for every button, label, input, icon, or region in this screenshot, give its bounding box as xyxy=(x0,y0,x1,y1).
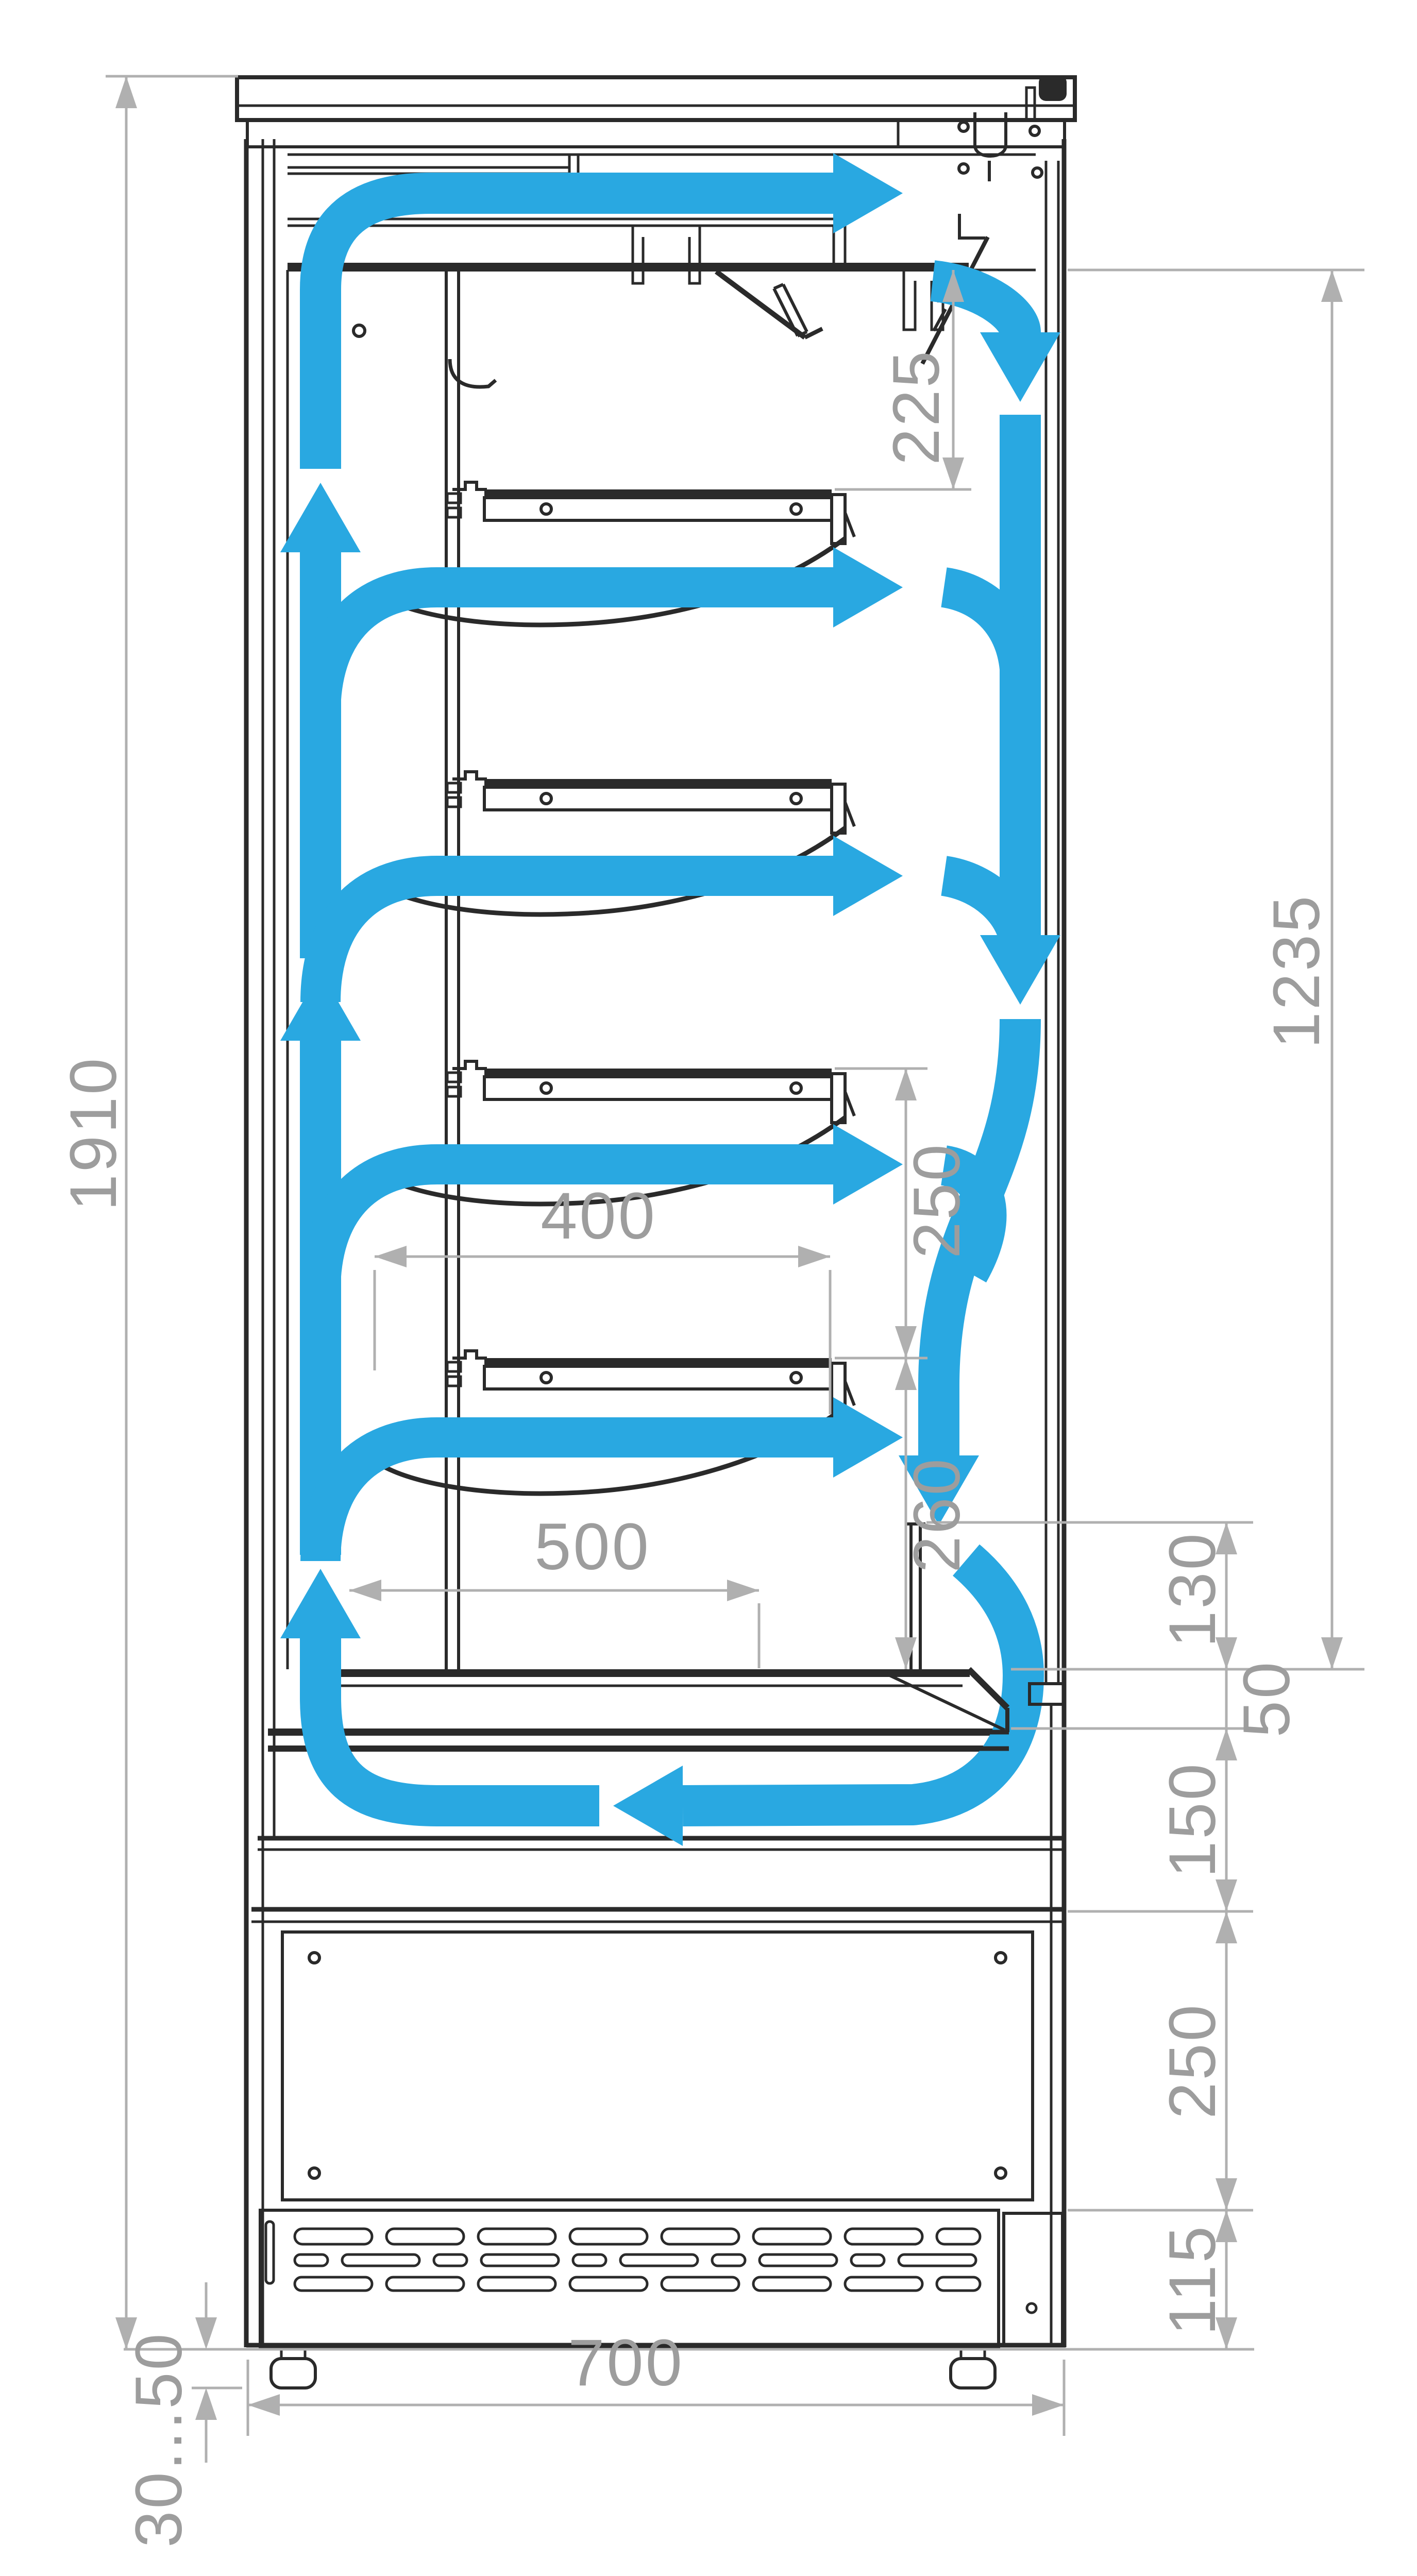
vent-slot xyxy=(295,2229,372,2244)
shelf-front-bracket xyxy=(832,784,845,833)
vent-slot xyxy=(295,2277,372,2291)
airflow-left-arrow xyxy=(613,1766,683,1846)
vent-slot xyxy=(295,2255,328,2266)
vent-slot xyxy=(434,2255,467,2266)
dim-overall-depth: 700 xyxy=(248,2326,1064,2416)
well-top xyxy=(330,1669,970,1677)
top-cap xyxy=(237,75,1075,147)
shelf-front-bracket xyxy=(832,495,845,544)
vent-slot xyxy=(478,2277,555,2291)
screw xyxy=(353,325,365,336)
vent-slot xyxy=(753,2277,831,2291)
vent-slot xyxy=(573,2255,606,2266)
dim-label-250b: 250 xyxy=(1156,2003,1229,2119)
vent-slot xyxy=(481,2255,559,2266)
screw xyxy=(996,2168,1006,2178)
airflow-shelf-branch xyxy=(320,587,833,714)
airflow-shelf-branch xyxy=(320,876,833,1002)
dim-label-50: 50 xyxy=(1230,1660,1304,1737)
foot xyxy=(271,2347,315,2388)
compartment-panel xyxy=(282,1932,1033,2200)
shelf-front-bracket xyxy=(832,1074,845,1123)
cabinet-section-diagram: 1910 225 1235 250 260 xyxy=(0,0,1417,2576)
dim-label-225: 225 xyxy=(880,349,953,465)
dim-label-260: 260 xyxy=(900,1456,974,1573)
shelf-body xyxy=(484,787,832,810)
airflow-down-arrow xyxy=(980,332,1060,402)
canopy-floor xyxy=(288,263,969,272)
airflow-right-arrow xyxy=(833,1124,903,1205)
well-front-slope xyxy=(969,1669,1007,1708)
dim-label-250: 250 xyxy=(900,1142,974,1259)
door-hinge-knob xyxy=(1039,75,1067,101)
shelf-body xyxy=(484,498,832,520)
screw xyxy=(791,1372,801,1383)
vent-slot xyxy=(386,2229,464,2244)
screw xyxy=(959,122,968,131)
airflow-curtain-start xyxy=(933,281,1020,332)
vent-slot xyxy=(570,2277,647,2291)
screw xyxy=(1030,126,1039,135)
screw xyxy=(541,504,551,514)
vent-slot xyxy=(845,2229,922,2244)
vent-slot xyxy=(712,2255,745,2266)
sensor-probe xyxy=(450,359,496,387)
vent-slot xyxy=(937,2229,980,2244)
vent-slot xyxy=(662,2229,739,2244)
page: { "diagram": { "title": "refrigerated-di… xyxy=(0,0,1417,2576)
vent-slot xyxy=(760,2255,837,2266)
dimensions: 1910 225 1235 250 260 xyxy=(57,76,1364,2548)
dim-overall-height: 1910 xyxy=(57,76,137,2349)
foot xyxy=(951,2347,995,2388)
side-slot xyxy=(266,2222,274,2283)
dim-label-700: 700 xyxy=(568,2326,684,2400)
screw xyxy=(791,793,801,804)
airflow-right-arrow xyxy=(833,836,903,916)
screw xyxy=(959,164,968,173)
airflow-up-arrow xyxy=(280,483,361,552)
screw xyxy=(309,1953,319,1963)
dim-label-115: 115 xyxy=(1156,2224,1229,2335)
dim-label-130: 130 xyxy=(1156,1531,1229,1648)
machine-compartment xyxy=(282,1932,1033,2200)
screw xyxy=(541,1372,551,1383)
foot-body xyxy=(271,2359,315,2388)
foot-body xyxy=(951,2359,995,2388)
vent-slot xyxy=(620,2255,698,2266)
dim-label-150: 150 xyxy=(1156,1761,1229,1878)
dim-well-width: 500 xyxy=(349,1510,759,1601)
dim-display-opening: 1235 xyxy=(1260,270,1343,1669)
screw xyxy=(1027,2303,1036,2313)
door-latch xyxy=(1026,88,1035,121)
duct-bracket xyxy=(633,227,700,283)
shelf-body xyxy=(484,1077,832,1099)
dim-label-400: 400 xyxy=(541,1179,657,1253)
vent-slot xyxy=(662,2277,739,2291)
shelves xyxy=(379,482,854,1494)
screw xyxy=(791,1083,801,1093)
airflow-merge xyxy=(944,587,1020,680)
vent-slot xyxy=(342,2255,419,2266)
screw xyxy=(541,793,551,804)
airflow-up-arrow xyxy=(280,1569,361,1638)
vent-slot xyxy=(478,2229,555,2244)
vent-grille-slots xyxy=(295,2229,980,2291)
vent-slot xyxy=(753,2229,831,2244)
screw xyxy=(996,1953,1006,1963)
shelf-body xyxy=(484,1366,832,1389)
screw xyxy=(541,1083,551,1093)
screw xyxy=(309,2168,319,2178)
airflow-right-arrow xyxy=(833,153,903,233)
dim-label-30-50: 30...50 xyxy=(122,2331,196,2547)
vent-slot xyxy=(937,2277,980,2291)
vent-slot xyxy=(845,2277,922,2291)
dim-label-500: 500 xyxy=(534,1510,651,1584)
vent-slot xyxy=(570,2229,647,2244)
airflow-right-arrow xyxy=(833,1397,903,1478)
right-duct-box xyxy=(1004,2213,1062,2345)
airflow-down-arrow xyxy=(980,935,1060,1005)
vent-slot xyxy=(386,2277,464,2291)
screw xyxy=(791,504,801,514)
dim-shelf-depth: 400 xyxy=(375,1179,830,1267)
vent-slot xyxy=(899,2255,976,2266)
vent-slot xyxy=(851,2255,884,2266)
airflow-right-arrow xyxy=(833,547,903,628)
dim-right-chain: 130 50 150 250 115 xyxy=(1156,1522,1304,2349)
airflow-top-duct xyxy=(320,193,833,469)
dim-label-1910: 1910 xyxy=(57,1056,130,1211)
screw xyxy=(1033,168,1042,177)
dim-label-1235: 1235 xyxy=(1260,894,1334,1049)
dim-feet-adjustment: 30...50 xyxy=(122,2282,217,2548)
